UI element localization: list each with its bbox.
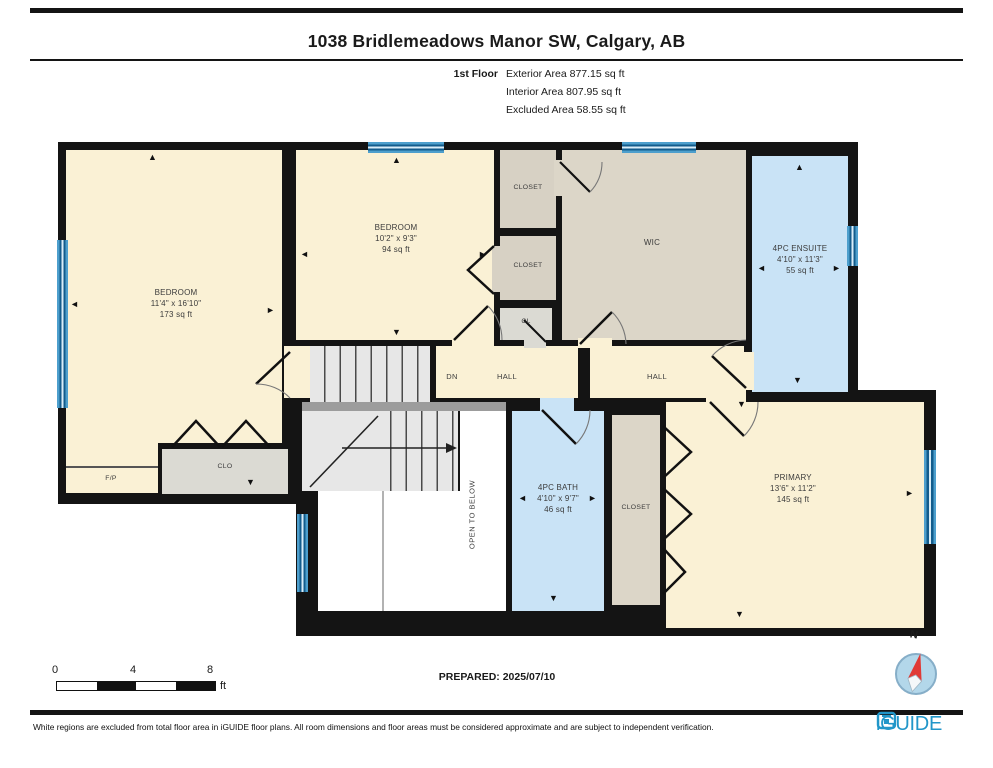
open-to-below-area (318, 491, 506, 611)
area-excluded: Excluded Area 58.55 sq ft (506, 104, 626, 116)
measure-arrow: ▲ (795, 163, 804, 172)
opening (524, 338, 546, 348)
label-closet-top: CLOSET (498, 184, 558, 191)
scale-tick: 0 (52, 664, 58, 676)
page-title: 1038 Bridlemeadows Manor SW, Calgary, AB (0, 31, 993, 52)
opening (452, 336, 494, 348)
label-bedroom-left: BEDROOM 11'4" x 16'10" 173 sq ft (106, 288, 246, 320)
opening (744, 352, 754, 390)
fireplace-line (66, 466, 158, 468)
label-dn: DN (432, 372, 472, 381)
measure-arrow: ► (266, 306, 275, 315)
scale-tick: 8 (207, 664, 213, 676)
measure-arrow: ▼ (246, 478, 255, 487)
measure-arrow: ◄ (757, 264, 766, 273)
measure-arrow: ▼ (737, 400, 746, 409)
stairs-landing-strip (302, 402, 506, 411)
label-fp: F/P (86, 475, 136, 482)
room-primary (666, 402, 924, 628)
area-exterior: Exterior Area 877.15 sq ft (506, 68, 624, 80)
opening (540, 398, 574, 413)
label-bedroom-mid: BEDROOM 10'2" x 9'3" 94 sq ft (326, 223, 466, 255)
top-divider (30, 8, 963, 13)
room-fireplace-nook (66, 443, 158, 493)
area-interior: Interior Area 807.95 sq ft (506, 86, 621, 98)
stairs-upper-flight (310, 346, 430, 402)
header-rule (30, 59, 963, 61)
scale-bar-strip (56, 681, 216, 691)
window (924, 450, 936, 544)
measure-arrow: ► (588, 494, 597, 503)
window (57, 240, 68, 408)
window (297, 514, 308, 592)
room-clo (162, 449, 288, 494)
iguide-logo: iGUIDE (876, 710, 976, 738)
measure-arrow: ◄ (518, 494, 527, 503)
iguide-logo-text: iGUIDE (876, 713, 942, 736)
footer-divider (30, 710, 963, 715)
opening (492, 246, 502, 292)
measure-arrow: ▼ (735, 610, 744, 619)
measure-arrow: ► (832, 264, 841, 273)
window (368, 142, 444, 153)
label-hall-right: HALL (627, 372, 687, 381)
compass-north-label: N (903, 627, 925, 642)
stairs-lower-flight (376, 411, 458, 491)
label-open-to-below: OPEN TO BELOW (468, 447, 477, 583)
floor-plan-page: 1038 Bridlemeadows Manor SW, Calgary, AB… (0, 0, 993, 768)
label-clo: CLO (195, 463, 255, 470)
measure-arrow: ◄ (300, 250, 309, 259)
label-bath: 4PC BATH 4'10" x 9'7" 46 sq ft (498, 483, 618, 515)
label-cl: CL (506, 318, 546, 325)
disclaimer-text: White regions are excluded from total fl… (33, 722, 833, 732)
compass-icon (888, 644, 944, 700)
measure-arrow: ▲ (392, 156, 401, 165)
opening (578, 338, 612, 348)
stairs-landing (302, 411, 376, 491)
label-closet-br: CLOSET (606, 504, 666, 511)
opening (284, 346, 310, 398)
measure-arrow: ▼ (392, 328, 401, 337)
floor-label: 1st Floor (404, 68, 498, 80)
measure-arrow: ► (478, 250, 487, 259)
window (622, 142, 696, 153)
measure-arrow: ◄ (70, 300, 79, 309)
measure-arrow: ▼ (549, 594, 558, 603)
label-closet-mid: CLOSET (498, 262, 558, 269)
measure-arrow: ► (905, 489, 914, 498)
label-primary: PRIMARY 13'6" x 11'2" 145 sq ft (713, 473, 873, 505)
scale-unit: ft (220, 680, 226, 692)
scale-tick: 4 (130, 664, 136, 676)
measure-arrow: ▼ (793, 376, 802, 385)
label-wic: WIC (612, 238, 692, 249)
label-hall-left: HALL (477, 372, 537, 381)
measure-arrow: ▲ (148, 153, 157, 162)
prepared-date: PREPARED: 2025/07/10 (397, 671, 597, 683)
